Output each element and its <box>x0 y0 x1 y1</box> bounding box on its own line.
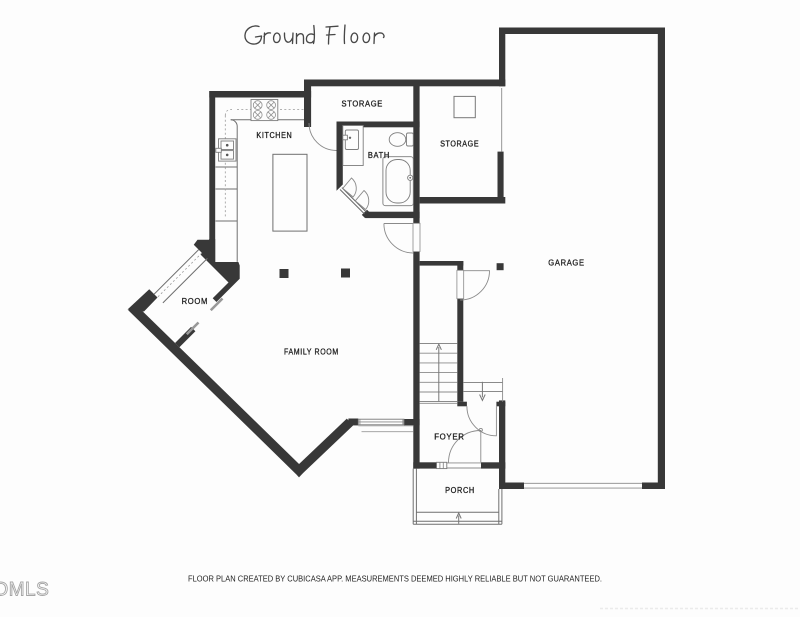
svg-text:STORAGE: STORAGE <box>440 140 479 149</box>
svg-text:DMLS: DMLS <box>0 580 49 601</box>
svg-text:BATH: BATH <box>368 151 390 160</box>
svg-text:FOYER: FOYER <box>434 432 464 441</box>
svg-text:ROOM: ROOM <box>182 297 208 306</box>
svg-text:FLOOR PLAN CREATED BY CUBICASA: FLOOR PLAN CREATED BY CUBICASA APP. MEAS… <box>188 575 602 584</box>
svg-text:STORAGE: STORAGE <box>342 99 384 108</box>
svg-text:PORCH: PORCH <box>445 486 475 495</box>
svg-text:FAMILY ROOM: FAMILY ROOM <box>284 348 339 357</box>
svg-text:KITCHEN: KITCHEN <box>256 131 292 140</box>
svg-text:GARAGE: GARAGE <box>548 259 584 268</box>
